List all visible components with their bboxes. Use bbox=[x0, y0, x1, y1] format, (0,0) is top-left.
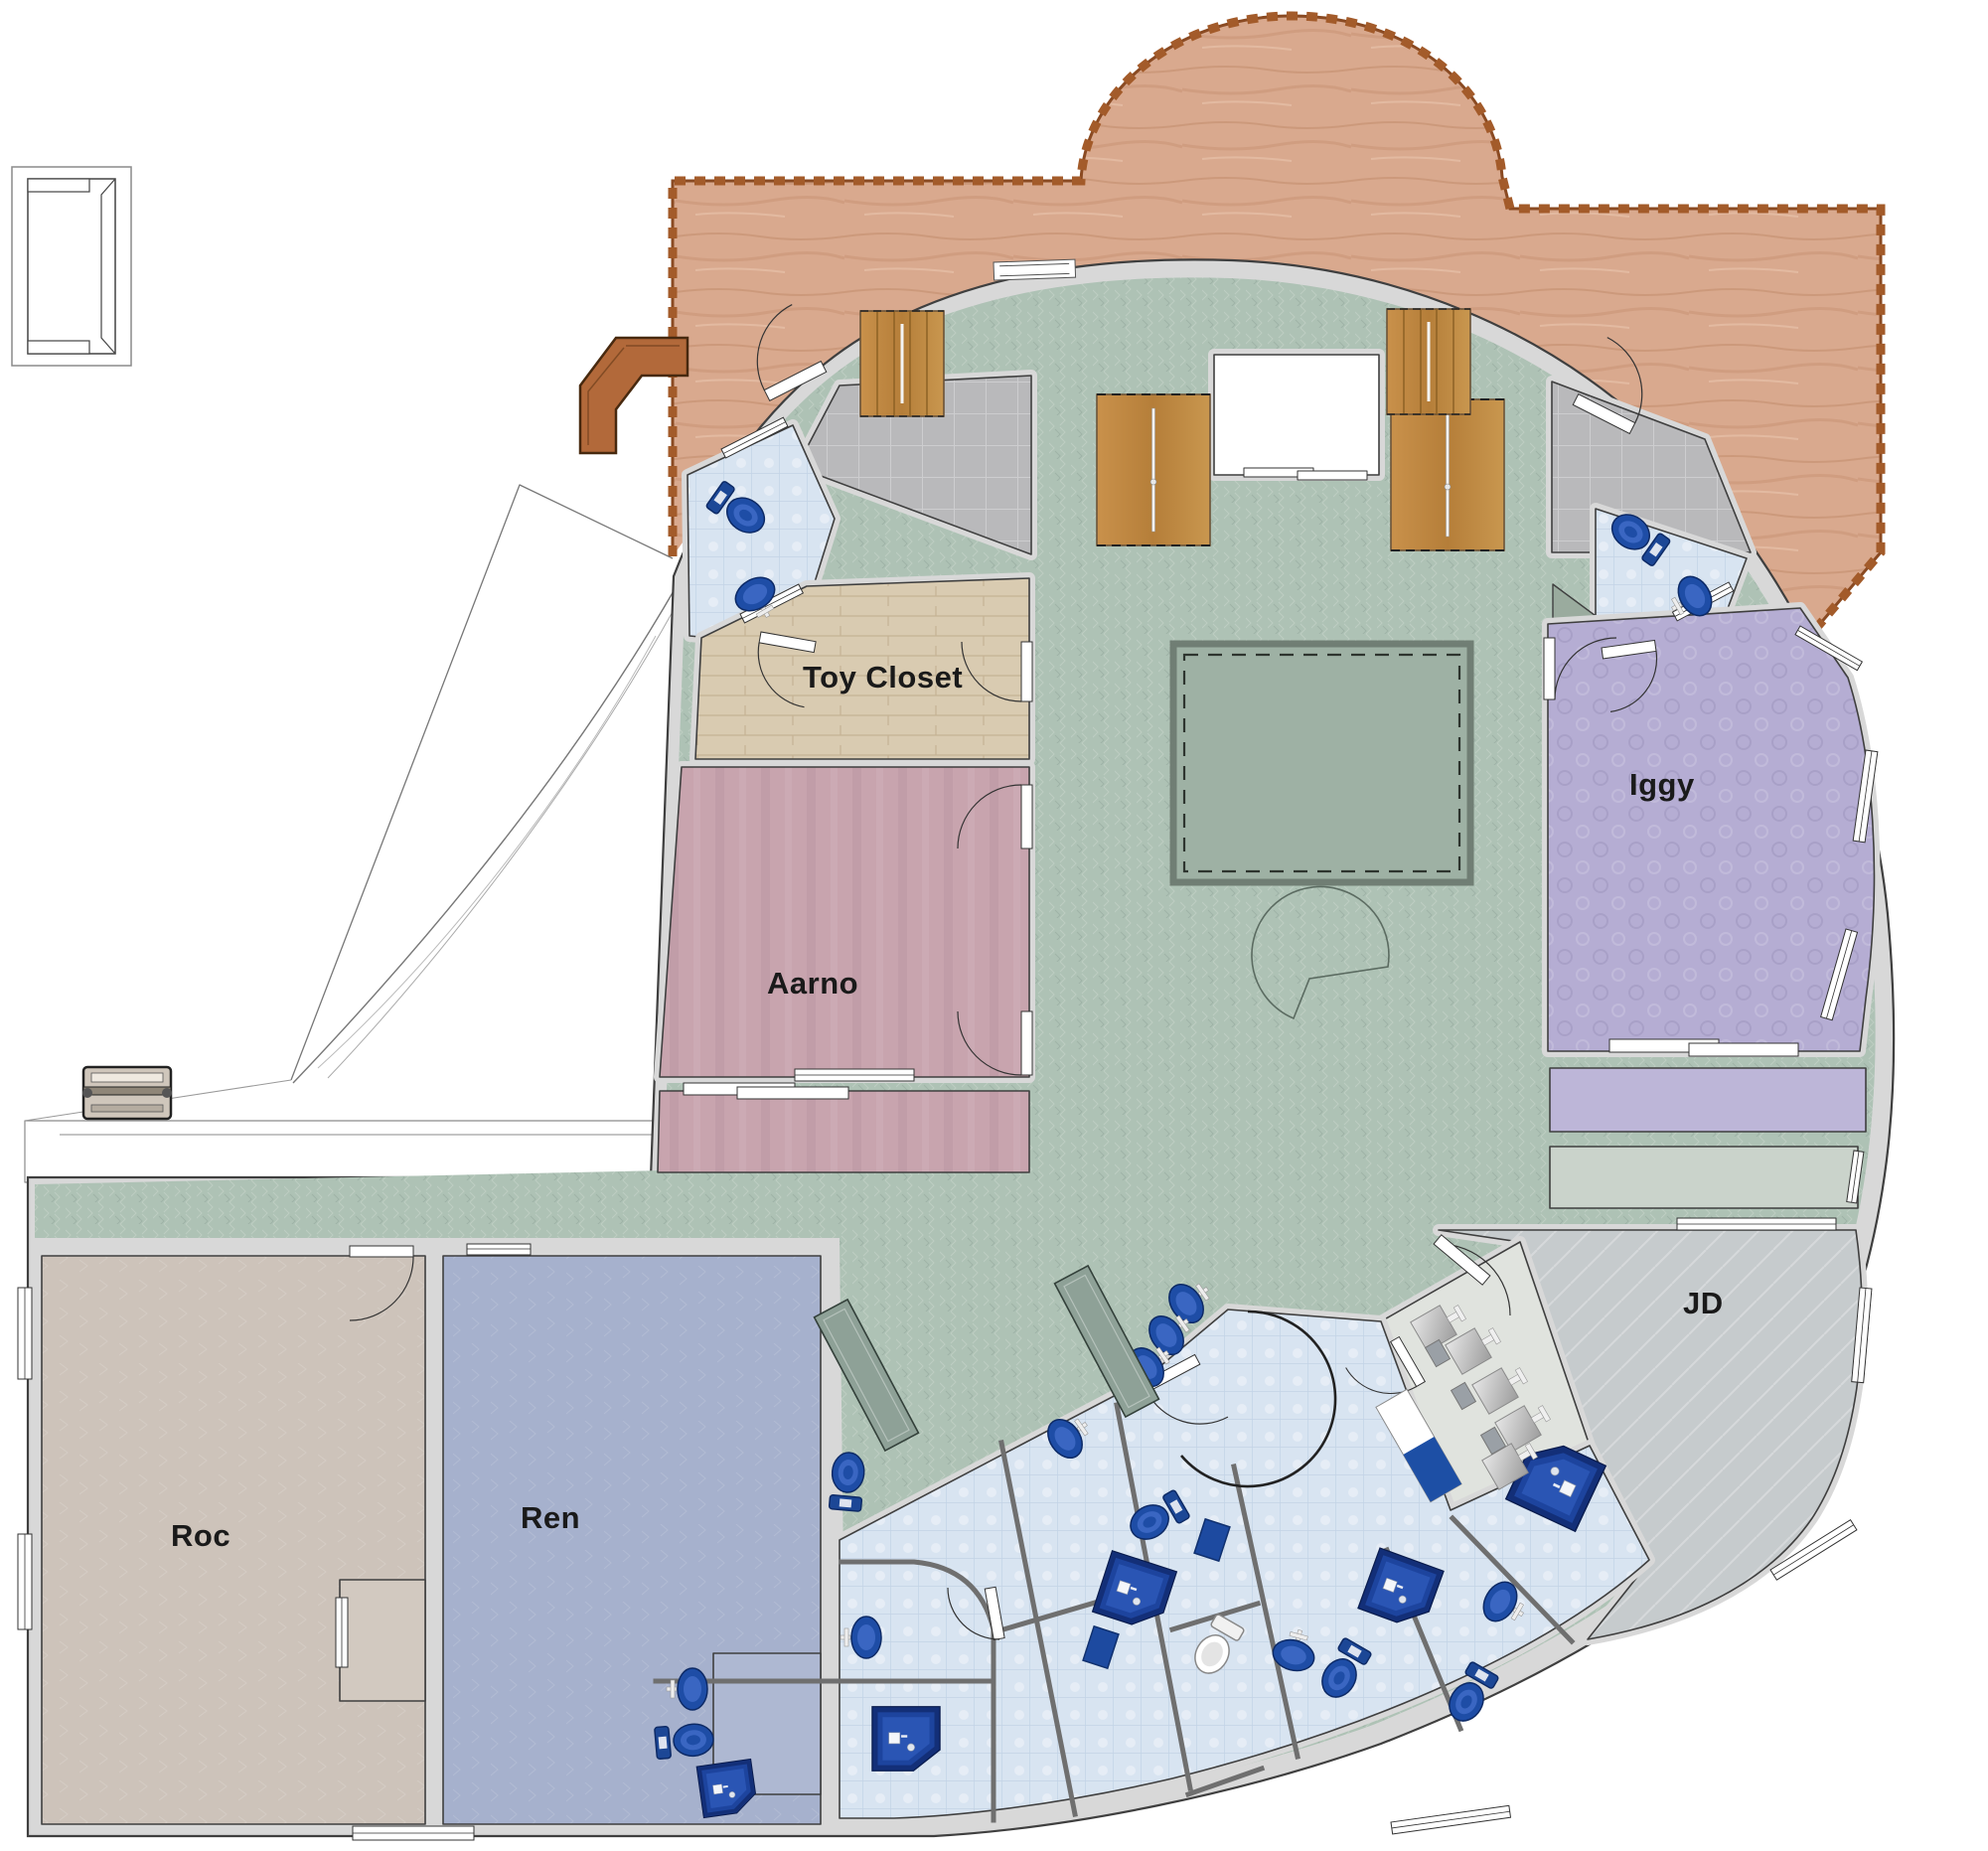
bench-slats[interactable] bbox=[860, 311, 944, 416]
closet-strip-green[interactable] bbox=[1550, 1147, 1858, 1208]
room-iggy[interactable] bbox=[1548, 608, 1874, 1051]
room-white[interactable] bbox=[1214, 355, 1379, 480]
window[interactable] bbox=[1677, 1218, 1836, 1230]
wardrobe[interactable] bbox=[1097, 394, 1210, 545]
press[interactable] bbox=[82, 1067, 172, 1119]
window[interactable] bbox=[795, 1069, 914, 1081]
room-ren[interactable] bbox=[443, 1256, 821, 1824]
window[interactable] bbox=[467, 1244, 531, 1255]
closet-strip-purple[interactable] bbox=[1550, 1068, 1866, 1132]
play-rug[interactable] bbox=[1173, 644, 1470, 882]
window[interactable] bbox=[336, 1598, 348, 1667]
wardrobe[interactable] bbox=[1391, 399, 1504, 550]
bench-slats[interactable] bbox=[1387, 309, 1470, 414]
window[interactable] bbox=[1391, 1805, 1511, 1834]
window[interactable] bbox=[18, 1534, 32, 1629]
floor-plan-canvas: Toy Closet Aarno Iggy JD Roc Ren bbox=[0, 0, 1988, 1851]
closet-roc bbox=[340, 1580, 425, 1701]
room-label-toy-closet: Toy Closet bbox=[803, 660, 963, 694]
sofa[interactable] bbox=[12, 167, 131, 366]
room-label-ren: Ren bbox=[521, 1500, 580, 1535]
room-label-aarno: Aarno bbox=[767, 966, 858, 1001]
room-roc[interactable] bbox=[42, 1256, 425, 1824]
room-label-iggy: Iggy bbox=[1629, 767, 1695, 802]
room-label-roc: Roc bbox=[171, 1518, 230, 1553]
window[interactable] bbox=[18, 1288, 32, 1379]
room-label-jd: JD bbox=[1683, 1286, 1724, 1320]
wall-opening[interactable] bbox=[994, 259, 1076, 280]
window[interactable] bbox=[353, 1826, 474, 1840]
